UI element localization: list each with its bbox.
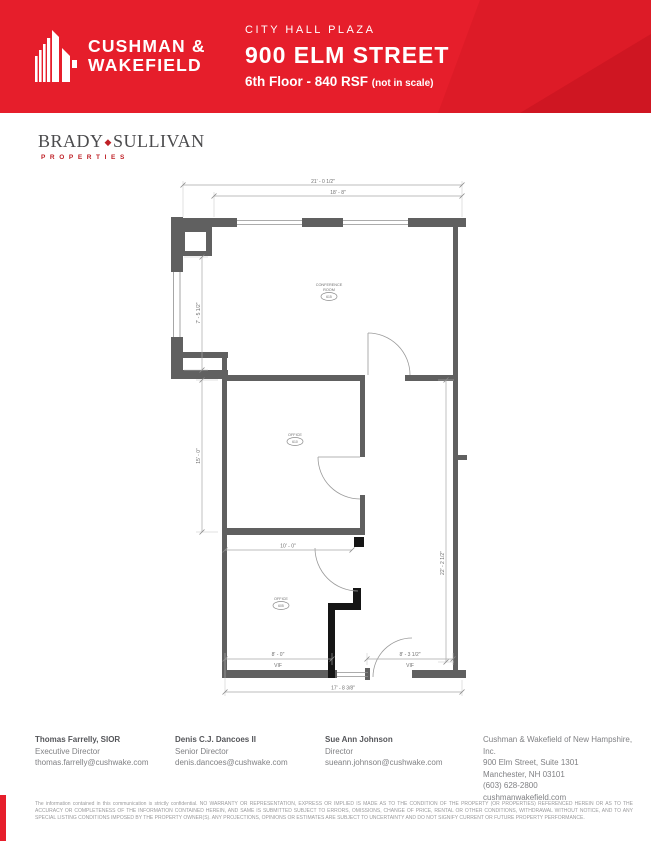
company-address1: 900 Elm Street, Suite 1301 [483, 757, 633, 769]
dimension-labels-group: 21' - 0 1/2" 18' - 8" 7' - 5 1/2" 15' - … [196, 179, 446, 692]
company-phone: (603) 628-2800 [483, 780, 633, 792]
dim-window-band-top: 18' - 8" [330, 190, 346, 196]
contact-title: Executive Director [35, 746, 175, 758]
dim-bottom-left-note: VIF [274, 663, 282, 669]
contact-card: Thomas Farrelly, SIOR Executive Director… [35, 734, 175, 803]
room-tag-name: CONFERENCE [316, 283, 343, 287]
company-info: Cushman & Wakefield of New Hampshire, In… [483, 734, 633, 803]
brady-text: BRADY [38, 131, 104, 151]
company-name: Cushman & Wakefield of New Hampshire, In… [483, 734, 633, 757]
room-tags-group: CONFERENCE ROOM 615 OFFICE 610 OFFICE 60… [273, 283, 343, 610]
contact-title: Director [325, 746, 483, 758]
contact-title: Senior Director [175, 746, 325, 758]
room-tag-name: OFFICE [274, 597, 288, 601]
contacts-footer: Thomas Farrelly, SIOR Executive Director… [35, 734, 635, 803]
scale-note: (not in scale) [372, 78, 434, 89]
brand-line2: WAKEFIELD [88, 56, 206, 75]
dim-left-upper: 7' - 5 1/2" [196, 302, 202, 323]
cushman-wakefield-logo: CUSHMAN & WAKEFIELD [35, 30, 206, 82]
brady-sullivan-logo: BRADY◆SULLIVAN PROPERTIES [38, 131, 208, 161]
room-tag-number: 605 [278, 604, 284, 608]
contact-email-link[interactable]: sueann.johnson@cushwake.com [325, 758, 443, 767]
cushman-wakefield-wordmark: CUSHMAN & WAKEFIELD [88, 37, 206, 75]
sullivan-text: SULLIVAN [113, 131, 205, 151]
dim-overall-width-top: 21' - 0 1/2" [311, 179, 335, 185]
contact-name: Denis C.J. Dancoes II [175, 734, 325, 746]
brady-sullivan-wordmark: BRADY◆SULLIVAN [38, 131, 208, 152]
floor-plan: 21' - 0 1/2" 18' - 8" 7' - 5 1/2" 15' - … [160, 173, 475, 718]
company-address2: Manchester, NH 03101 [483, 769, 633, 781]
red-accent-strip [0, 795, 6, 841]
property-header: CITY HALL PLAZA 900 ELM STREET 6th Floor… [245, 24, 449, 89]
contact-name: Thomas Farrelly, SIOR [35, 734, 175, 746]
room-tag-name: OFFICE [288, 433, 302, 437]
legal-disclaimer: The information contained in this commun… [35, 801, 633, 822]
windows-group [174, 221, 409, 677]
cushman-wakefield-building-icon [35, 30, 77, 82]
contact-card: Denis C.J. Dancoes II Senior Director de… [175, 734, 325, 803]
diamond-icon: ◆ [104, 137, 113, 147]
floor-rsf: 6th Floor - 840 RSF [245, 74, 368, 89]
contact-card: Sue Ann Johnson Director sueann.johnson@… [325, 734, 483, 803]
column-inset [185, 232, 206, 251]
dim-left-lower: 15' - 0" [196, 448, 202, 464]
property-name: CITY HALL PLAZA [245, 24, 449, 36]
floor-info: 6th Floor - 840 RSF (not in scale) [245, 74, 449, 89]
contact-email-link[interactable]: denis.dancoes@cushwake.com [175, 758, 288, 767]
dim-bottom-left: 8' - 0" [272, 652, 285, 658]
dim-bottom-right: 8' - 3 1/2" [399, 652, 420, 658]
dim-right-side: 22' - 2 1/2" [440, 551, 446, 575]
dim-bottom-right-note: VIF [406, 663, 414, 669]
demising-wall-group [328, 537, 364, 678]
room-tag-name: ROOM [323, 288, 335, 292]
property-address: 900 ELM STREET [245, 42, 449, 69]
dim-overall-width-bottom: 17' - 8 3/8" [331, 686, 355, 692]
floor-plan-drawing: 21' - 0 1/2" 18' - 8" 7' - 5 1/2" 15' - … [160, 173, 475, 718]
brady-sullivan-subtitle: PROPERTIES [41, 154, 208, 161]
room-tag-number: 615 [326, 295, 332, 299]
room-tag-number: 610 [292, 440, 298, 444]
contact-email-link[interactable]: thomas.farrelly@cushwake.com [35, 758, 149, 767]
contact-name: Sue Ann Johnson [325, 734, 483, 746]
dim-room-width: 10' - 0" [280, 544, 296, 550]
header-banner: CUSHMAN & WAKEFIELD CITY HALL PLAZA 900 … [0, 0, 651, 113]
brand-line1: CUSHMAN & [88, 37, 206, 56]
